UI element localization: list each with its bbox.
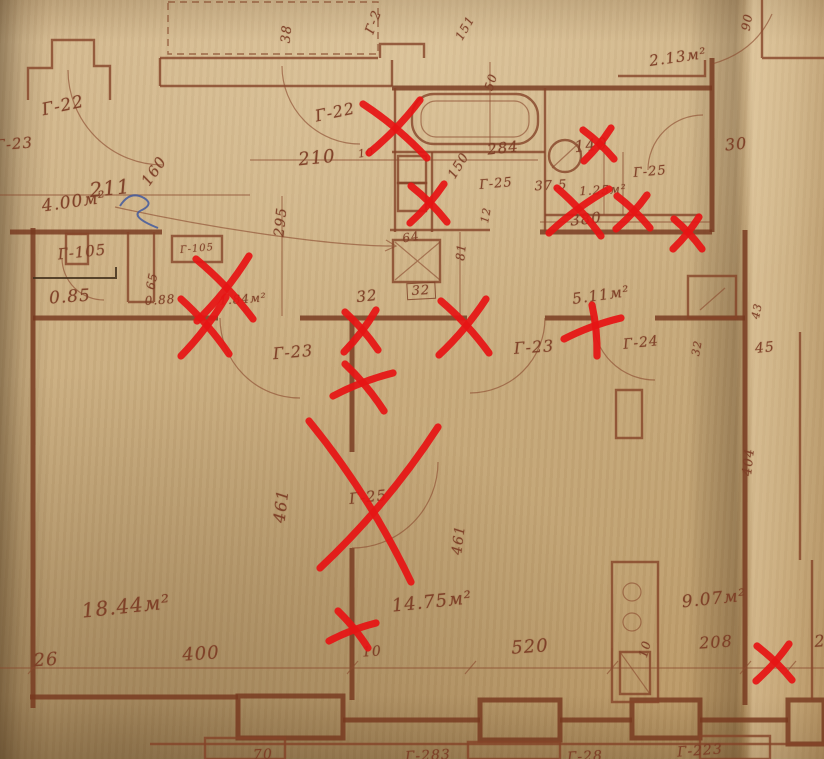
red-x-mark[interactable] [673, 217, 702, 249]
red-x-mark[interactable] [410, 184, 447, 223]
red-marks-layer [0, 0, 824, 759]
red-x-mark[interactable] [564, 305, 621, 356]
floorplan-photo: Г-22Г-232111604.00м²Г-2221010150284Г-253… [0, 0, 824, 759]
red-x-mark[interactable] [583, 128, 614, 161]
red-x-mark[interactable] [363, 100, 427, 158]
red-x-mark[interactable] [181, 297, 229, 356]
red-x-mark[interactable] [549, 188, 609, 236]
red-x-mark[interactable] [344, 310, 378, 352]
red-x-mark[interactable] [439, 299, 489, 355]
red-x-mark[interactable] [329, 611, 376, 648]
red-x-mark[interactable] [616, 195, 650, 229]
red-x-mark[interactable] [756, 644, 792, 681]
red-x-mark[interactable] [196, 256, 253, 321]
red-x-mark[interactable] [309, 421, 438, 582]
red-x-mark[interactable] [333, 364, 393, 411]
